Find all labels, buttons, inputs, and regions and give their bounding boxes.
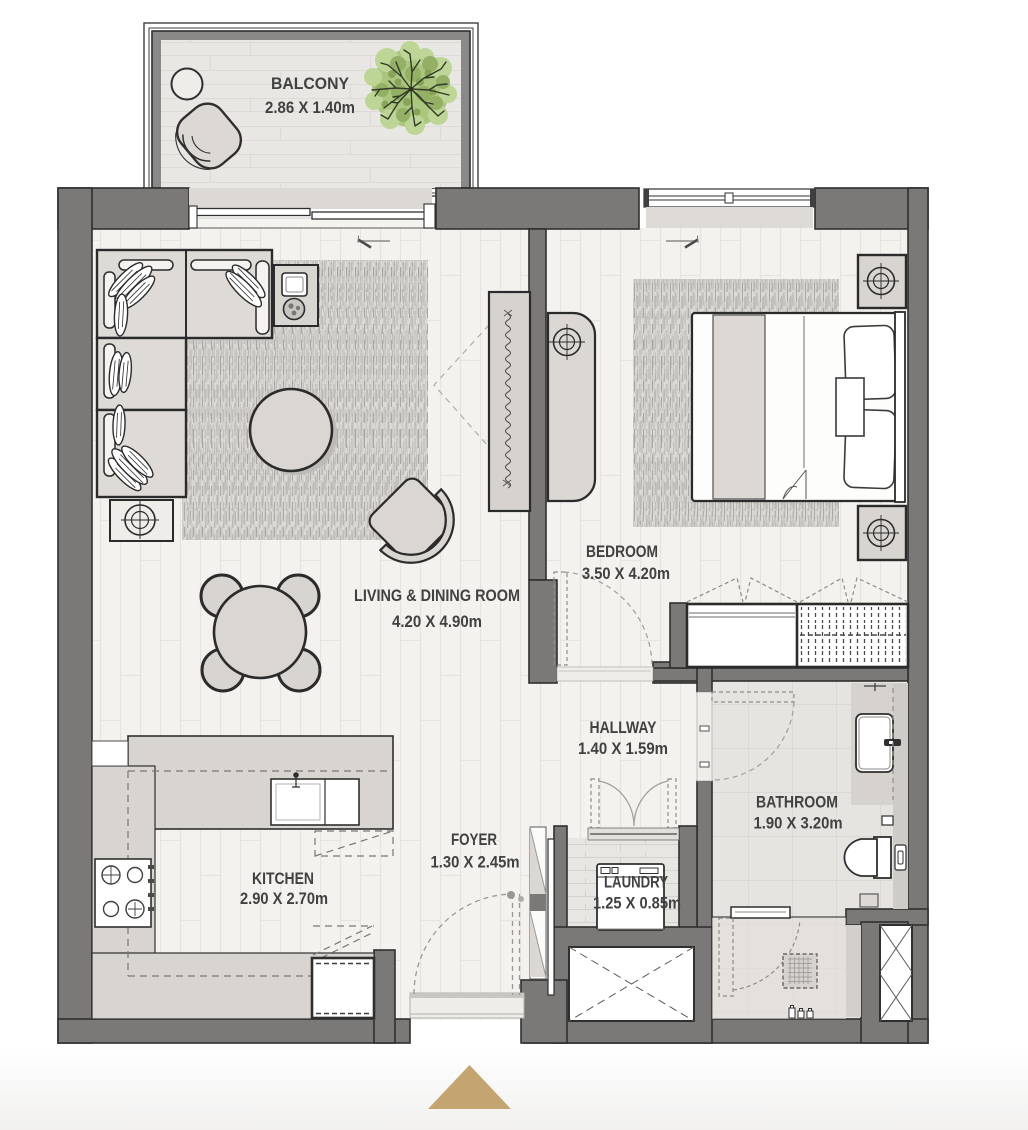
svg-text:KITCHEN: KITCHEN xyxy=(252,870,314,888)
svg-text:LIVING & DINING ROOM: LIVING & DINING ROOM xyxy=(354,587,520,605)
svg-text:BATHROOM: BATHROOM xyxy=(756,794,838,812)
svg-text:HALLWAY: HALLWAY xyxy=(590,719,657,737)
svg-text:2.90 X 2.70m: 2.90 X 2.70m xyxy=(240,890,328,908)
svg-text:1.40 X 1.59m: 1.40 X 1.59m xyxy=(578,740,668,758)
svg-text:2.86 X 1.40m: 2.86 X 1.40m xyxy=(265,99,355,117)
svg-text:BEDROOM: BEDROOM xyxy=(586,543,658,561)
svg-text:3.50 X 4.20m: 3.50 X 4.20m xyxy=(582,565,670,583)
svg-text:BALCONY: BALCONY xyxy=(271,75,349,93)
svg-text:1.30 X 2.45m: 1.30 X 2.45m xyxy=(431,854,520,872)
svg-text:4.20 X 4.90m: 4.20 X 4.90m xyxy=(392,613,482,631)
svg-text:1.90 X 3.20m: 1.90 X 3.20m xyxy=(754,815,843,833)
svg-text:FOYER: FOYER xyxy=(451,831,497,849)
svg-text:LAUNDRY: LAUNDRY xyxy=(604,874,668,892)
svg-text:1.25 X 0.85m: 1.25 X 0.85m xyxy=(593,895,681,913)
